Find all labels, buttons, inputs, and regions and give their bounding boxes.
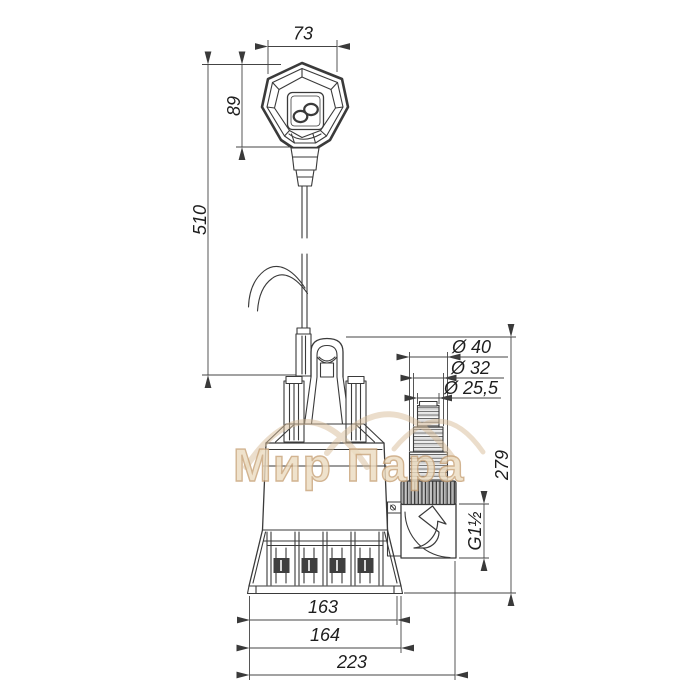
dim-label-cable-length: 510 [190,205,210,235]
watermark-text: Мир Пара [233,439,465,491]
dim-label-float-width: 73 [293,24,313,44]
dim-label-hose-step-3: Ø 25,5 [443,378,499,398]
dim-hose-step-3: Ø 25,5 [418,378,502,404]
dim-outlet-thread: G1½ [459,504,489,558]
dim-label-hose-step-2: Ø 32 [450,358,490,378]
outlet-port [388,502,402,556]
dim-label-outlet-thread: G1½ [465,511,485,550]
dimensions: 73 89 510 Ø 40 Ø 32 Ø 25 [190,24,516,681]
dim-label-base-plate-width: 164 [310,625,340,645]
handle-mount-rails [284,377,366,443]
dim-label-pump-height: 279 [492,450,512,481]
power-cord [249,266,308,311]
dim-overall-width: 223 [250,561,456,680]
pump-technical-drawing: 73 89 510 Ø 40 Ø 32 Ø 25 [0,0,700,700]
carry-handle [305,339,350,425]
intake-strainer [248,530,403,594]
float-cable [296,186,311,376]
dim-label-overall-width: 223 [336,652,367,672]
float-switch [262,63,348,186]
dim-label-base-width: 163 [308,597,338,617]
dim-label-float-height: 89 [224,96,244,116]
discharge-elbow [401,504,456,558]
drawing-canvas: 73 89 510 Ø 40 Ø 32 Ø 25 [0,0,700,700]
watermark: Мир Пара [233,414,483,491]
dim-label-hose-step-1: Ø 40 [451,337,491,357]
